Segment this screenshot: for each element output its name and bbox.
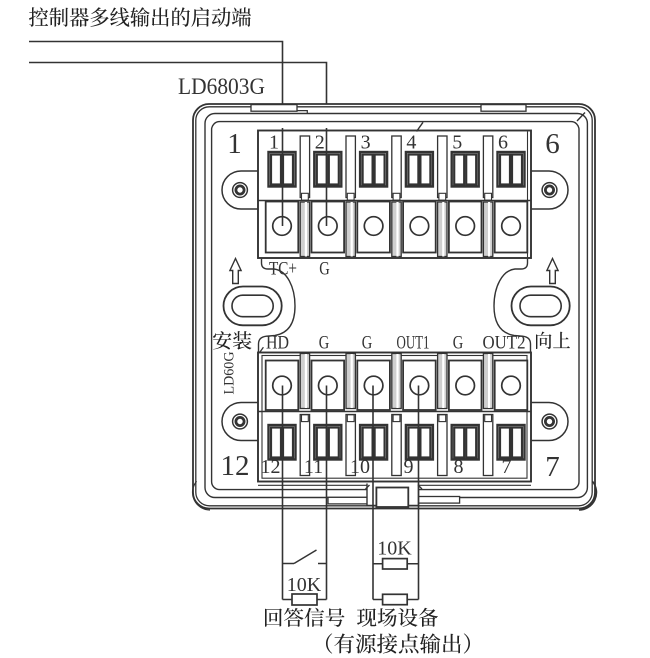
svg-text:TC+: TC+ (269, 259, 297, 280)
svg-text:11: 11 (304, 456, 323, 478)
svg-text:10K: 10K (377, 538, 412, 560)
svg-text:6: 6 (498, 132, 508, 154)
svg-text:OUT1: OUT1 (397, 333, 430, 354)
svg-text:1: 1 (227, 128, 242, 160)
svg-text:7: 7 (502, 456, 512, 478)
svg-text:7: 7 (545, 451, 560, 483)
svg-text:5: 5 (452, 132, 462, 154)
svg-text:6: 6 (545, 128, 560, 160)
svg-text:OUT2: OUT2 (483, 333, 526, 354)
svg-text:10: 10 (350, 456, 370, 478)
svg-text:12: 12 (221, 450, 250, 482)
svg-text:1: 1 (269, 132, 279, 154)
svg-text:12: 12 (261, 456, 281, 478)
svg-text:8: 8 (454, 456, 464, 478)
svg-text:HD: HD (266, 333, 289, 354)
svg-text:G: G (319, 259, 330, 280)
svg-text:G: G (453, 333, 464, 354)
svg-text:LD60G: LD60G (222, 351, 238, 394)
svg-text:2: 2 (315, 132, 325, 154)
svg-text:10K: 10K (287, 574, 322, 596)
svg-text:LD6803G: LD6803G (178, 74, 265, 99)
svg-text:3: 3 (361, 132, 371, 154)
svg-text:9: 9 (404, 456, 414, 478)
svg-text:G: G (319, 333, 330, 354)
svg-text:4: 4 (406, 132, 416, 154)
svg-text:G: G (362, 333, 373, 354)
